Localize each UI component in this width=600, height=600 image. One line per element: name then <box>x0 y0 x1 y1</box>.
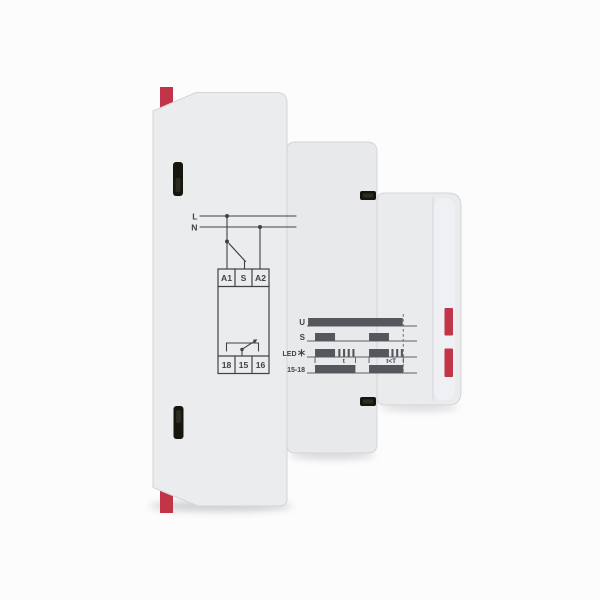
terminal-label-A2: A2 <box>255 273 266 283</box>
timing-bar-S <box>315 333 335 341</box>
terminal-label-A1: A1 <box>221 273 232 283</box>
timing-blink-stripe-LED <box>352 349 354 357</box>
timing-blink-stripe-LED <box>348 349 350 357</box>
timing-blink-stripe-LED <box>343 349 345 357</box>
terminal-label-16: 16 <box>256 360 266 370</box>
timing-blink-stripe-LED <box>338 349 340 357</box>
terminal-label-S: S <box>241 273 247 283</box>
timing-blink-stripe-LED <box>391 349 393 357</box>
annotation-label: t<T <box>386 358 396 365</box>
timing-bar-LED <box>315 349 335 357</box>
product-image: L N A1 S A2 18 15 16 <box>0 0 600 600</box>
terminal-slot-bottom-left <box>174 406 184 439</box>
terminal-slot-top-right <box>360 191 376 200</box>
timing-bar-S <box>369 333 389 341</box>
supply-line-label-L: L <box>192 211 197 221</box>
terminal-label-18: 18 <box>222 360 232 370</box>
timing-blink-stripe-LED <box>401 349 403 357</box>
timing-row-label-S: S <box>300 333 306 342</box>
timing-bar-15-18 <box>369 365 403 373</box>
device-body-rear-section <box>153 93 287 507</box>
timing-row-label-15-18: 15-18 <box>287 367 305 374</box>
terminal-label-15: 15 <box>239 360 249 370</box>
terminal-slot-top-left <box>173 162 183 196</box>
supply-line-label-N: N <box>191 223 197 233</box>
timing-row-label-LED: LED <box>283 351 297 358</box>
timing-row-label-U: U <box>299 318 305 327</box>
device-body-middle-section <box>287 142 377 453</box>
timing-blink-stripe-LED <box>396 349 398 357</box>
timing-bar-LED <box>369 349 389 357</box>
timing-bar-15-18 <box>315 365 355 373</box>
terminal-slot-bottom-right <box>360 397 376 406</box>
timing-bar-U <box>308 318 403 326</box>
